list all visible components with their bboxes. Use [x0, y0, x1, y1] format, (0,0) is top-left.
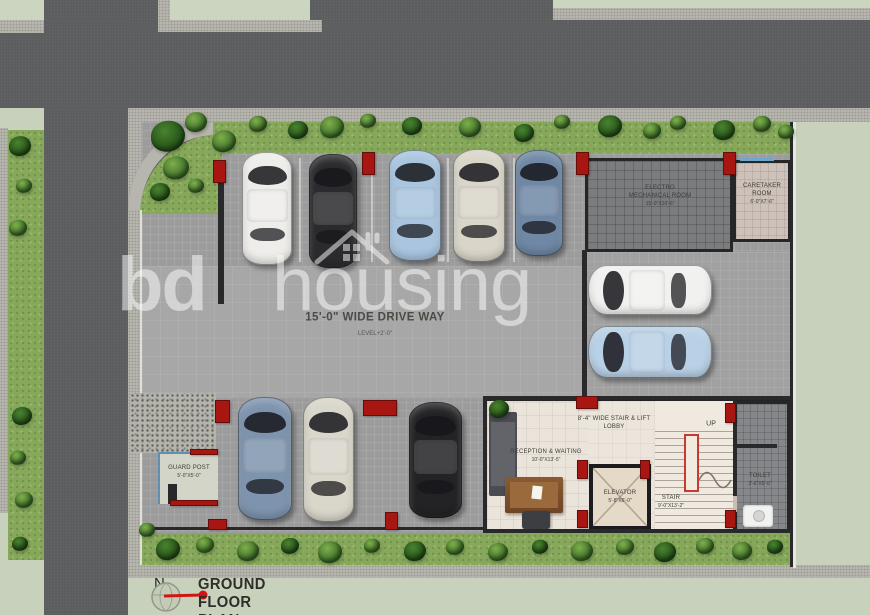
- road-horizontal: [0, 20, 870, 108]
- right-parking-bay: [585, 252, 790, 398]
- up-label: UP: [706, 419, 716, 428]
- toilet-line1: TOILET: [748, 473, 771, 481]
- toilet-door-gap: [733, 496, 737, 512]
- sidewalk-top-middle-2: [158, 20, 322, 32]
- mech-room-line2: MECHANICAL ROOM: [629, 193, 691, 201]
- elevator-label: ELEVATOR 5'-8"X6'-0": [604, 490, 637, 504]
- lobby-line2: LOBBY: [578, 424, 650, 432]
- stall-divider: [299, 158, 301, 262]
- sidewalk-far-left: [0, 128, 8, 513]
- toilet-label: TOILET 3'-6"X5'-6": [748, 473, 771, 487]
- site-right-line: [793, 122, 796, 568]
- office-chair: [522, 511, 550, 529]
- mech-room-dim: 15'-0"X10'-6": [629, 201, 691, 208]
- reception-label: RECEPTION & WAITING 10'-0"X13'-5": [510, 449, 582, 463]
- grass-band-top: [213, 122, 793, 154]
- floor-plan-scene: 15'-0" WIDE DRIVE WAY LEVEL+2'-0" ELECTR…: [0, 0, 870, 615]
- caretaker-label: CARETAKER ROOM 6'-0"X7'-6": [743, 183, 781, 205]
- guard-post-label: GUARD POST 5'-0"X5'-0": [168, 465, 210, 479]
- caretaker-window: [740, 158, 774, 161]
- stair-dim: 9'-0"X13'-2": [658, 503, 684, 510]
- plot-top-middle: [170, 0, 310, 20]
- grass-strip-left: [8, 130, 44, 560]
- stair-break-line: [698, 468, 732, 492]
- elevator-line1: ELEVATOR: [604, 490, 637, 498]
- stall-divider: [371, 158, 373, 262]
- guard-post-line1: GUARD POST: [168, 465, 210, 473]
- driveway-label: 15'-0" WIDE DRIVE WAY: [305, 311, 445, 326]
- sink-bowl: [753, 510, 765, 522]
- mech-room-label: ELECTRO MECHANICAL ROOM 15'-0"X10'-6": [629, 185, 691, 207]
- lobby-line1: 8'-4" WIDE STAIR & LIFT: [578, 416, 650, 424]
- stair-label: STAIR 9'-0"X13'-2": [658, 495, 684, 509]
- reception-line1: RECEPTION & WAITING: [510, 449, 582, 457]
- grass-band-bottom: [142, 533, 793, 565]
- sofa-armrest: [489, 412, 517, 422]
- caretaker-dim: 6'-0"X7'-6": [743, 199, 781, 206]
- desk-paper: [531, 486, 542, 500]
- plot-top-left: [0, 0, 44, 20]
- gravel-entry: [130, 393, 216, 453]
- stall-divider: [447, 158, 449, 262]
- stair-line1: STAIR: [658, 495, 684, 503]
- reception-dim: 10'-0"X13'-5": [510, 457, 582, 464]
- caretaker-line1: CARETAKER: [743, 183, 781, 191]
- plan-title: GROUND FLOOR PLAN: [198, 576, 279, 615]
- sidewalk-top-left: [0, 20, 44, 33]
- mech-room-line1: ELECTRO: [629, 185, 691, 193]
- lobby-label: 8'-4" WIDE STAIR & LIFT LOBBY: [578, 416, 650, 432]
- toilet-dim: 3'-6"X5'-6": [748, 481, 771, 488]
- stall-divider: [513, 158, 515, 262]
- caretaker-line2: ROOM: [743, 191, 781, 199]
- guard-post-dim: 5'-0"X5'-0": [168, 473, 210, 480]
- driveway-level-label: LEVEL+2'-0": [358, 331, 392, 339]
- elevator-dim: 5'-8"X6'-0": [604, 498, 637, 505]
- plot-top-right: [553, 0, 870, 8]
- stair-rail: [684, 434, 699, 492]
- sidewalk-top-right: [553, 8, 870, 20]
- sidewalk-site-top: [128, 108, 870, 122]
